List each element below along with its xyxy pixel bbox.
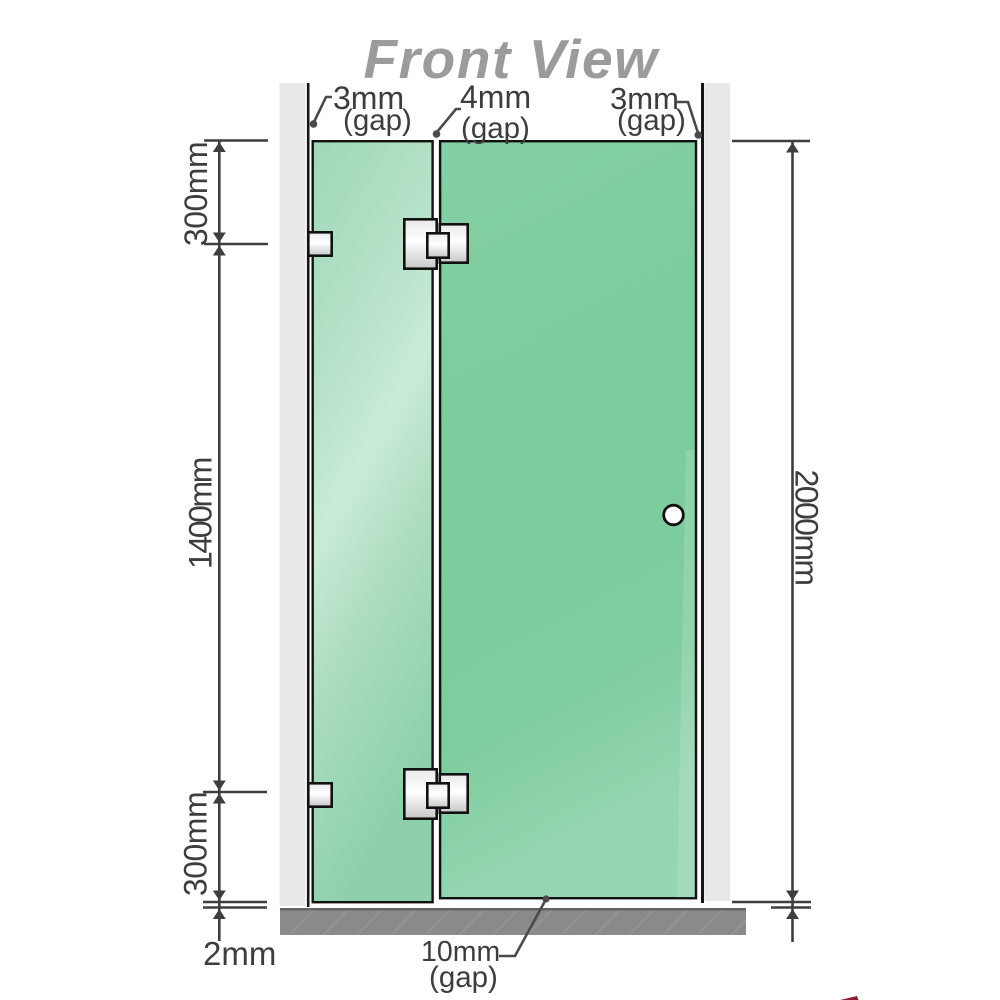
svg-text:(gap): (gap) xyxy=(343,104,412,137)
svg-text:300mm: 300mm xyxy=(178,792,214,896)
svg-text:2mm: 2mm xyxy=(203,935,276,972)
svg-text:(gap): (gap) xyxy=(461,112,530,145)
svg-text:300mm: 300mm xyxy=(178,142,214,246)
svg-text:1400mm: 1400mm xyxy=(183,458,219,569)
svg-text:(gap): (gap) xyxy=(617,104,686,137)
svg-text:(gap): (gap) xyxy=(429,961,498,994)
svg-text:2000mm: 2000mm xyxy=(789,470,825,585)
svg-text:4mm: 4mm xyxy=(460,79,531,115)
